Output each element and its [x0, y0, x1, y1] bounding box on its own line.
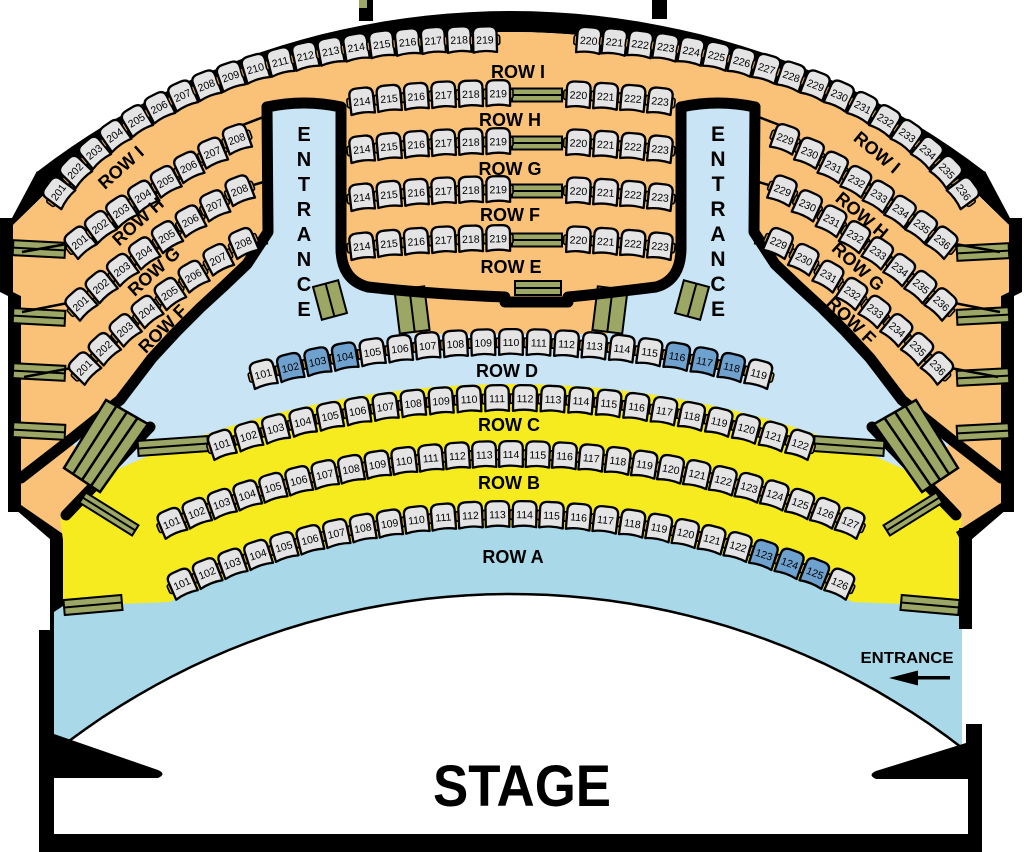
svg-text:ROW I: ROW I	[491, 62, 545, 82]
svg-text:ROW H: ROW H	[479, 110, 541, 130]
svg-text:C: C	[297, 274, 311, 296]
svg-text:N: N	[297, 149, 311, 171]
svg-text:222: 222	[631, 38, 650, 52]
svg-text:108: 108	[404, 397, 423, 411]
svg-text:N: N	[297, 249, 311, 271]
svg-text:ROW C: ROW C	[478, 415, 540, 435]
svg-text:113: 113	[585, 340, 603, 353]
svg-text:219: 219	[489, 88, 507, 100]
svg-text:220: 220	[569, 89, 587, 102]
svg-text:214: 214	[353, 143, 372, 157]
svg-text:222: 222	[624, 189, 643, 202]
svg-text:214: 214	[353, 95, 372, 109]
svg-text:115: 115	[529, 449, 546, 461]
svg-text:117: 117	[596, 514, 614, 528]
svg-text:221: 221	[597, 236, 615, 249]
svg-text:110: 110	[460, 394, 477, 407]
svg-text:215: 215	[380, 93, 399, 106]
svg-text:217: 217	[424, 35, 443, 48]
svg-text:221: 221	[597, 187, 615, 200]
svg-text:ROW A: ROW A	[482, 547, 543, 567]
svg-text:216: 216	[398, 36, 417, 50]
svg-text:216: 216	[407, 139, 425, 152]
svg-text:R: R	[297, 199, 312, 221]
svg-text:118: 118	[623, 517, 641, 531]
svg-text:111: 111	[489, 393, 505, 405]
svg-text:111: 111	[531, 337, 547, 349]
svg-text:T: T	[298, 174, 310, 196]
svg-text:ROW D: ROW D	[476, 361, 538, 381]
svg-text:N: N	[710, 148, 725, 171]
svg-text:T: T	[712, 173, 725, 196]
svg-text:119: 119	[635, 458, 654, 472]
svg-text:114: 114	[572, 395, 590, 408]
svg-text:220: 220	[569, 185, 587, 198]
svg-text:113: 113	[489, 509, 506, 521]
svg-text:ROW B: ROW B	[478, 473, 540, 493]
svg-text:116: 116	[627, 401, 645, 415]
svg-text:113: 113	[476, 449, 493, 462]
svg-text:110: 110	[395, 455, 413, 469]
svg-text:114: 114	[503, 449, 520, 461]
svg-text:220: 220	[569, 137, 587, 150]
svg-text:116: 116	[556, 450, 574, 463]
svg-text:223: 223	[651, 95, 670, 109]
svg-text:215: 215	[372, 38, 391, 52]
svg-text:113: 113	[544, 394, 561, 407]
svg-text:ROW E: ROW E	[481, 257, 542, 277]
svg-text:222: 222	[624, 238, 643, 251]
svg-text:106: 106	[391, 343, 410, 357]
svg-text:215: 215	[380, 238, 399, 251]
svg-text:110: 110	[503, 337, 520, 349]
svg-text:E: E	[711, 298, 725, 321]
svg-text:STAGE: STAGE	[433, 754, 611, 819]
svg-text:219: 219	[476, 34, 494, 46]
svg-text:116: 116	[570, 511, 588, 524]
svg-text:109: 109	[432, 395, 451, 408]
svg-text:112: 112	[517, 393, 534, 405]
svg-text:222: 222	[624, 141, 643, 154]
svg-text:ROW G: ROW G	[479, 159, 542, 179]
svg-text:217: 217	[435, 137, 453, 150]
svg-text:112: 112	[449, 450, 467, 463]
svg-text:218: 218	[462, 89, 480, 101]
svg-text:219: 219	[489, 136, 507, 148]
svg-text:115: 115	[600, 397, 618, 411]
svg-text:214: 214	[353, 191, 372, 205]
svg-text:A: A	[297, 224, 311, 246]
svg-text:110: 110	[408, 514, 426, 528]
svg-text:214: 214	[353, 240, 372, 254]
svg-text:218: 218	[450, 34, 468, 47]
svg-text:112: 112	[558, 338, 576, 351]
svg-text:223: 223	[651, 143, 670, 157]
svg-text:R: R	[710, 198, 725, 221]
svg-text:221: 221	[597, 139, 615, 152]
svg-text:109: 109	[474, 337, 492, 349]
svg-text:105: 105	[363, 346, 382, 360]
svg-text:A: A	[710, 223, 725, 246]
svg-text:115: 115	[640, 346, 658, 360]
svg-text:E: E	[297, 124, 310, 146]
svg-text:N: N	[710, 248, 725, 271]
svg-text:216: 216	[407, 187, 425, 200]
svg-text:222: 222	[624, 93, 643, 106]
svg-text:107: 107	[376, 401, 395, 415]
svg-text:ROW F: ROW F	[480, 205, 540, 225]
svg-text:114: 114	[516, 509, 533, 521]
svg-text:E: E	[297, 299, 310, 321]
svg-text:107: 107	[418, 340, 437, 353]
svg-text:215: 215	[380, 189, 399, 202]
svg-text:218: 218	[462, 137, 480, 149]
svg-text:112: 112	[462, 510, 479, 523]
svg-text:218: 218	[462, 234, 480, 246]
svg-text:E: E	[711, 123, 725, 146]
svg-text:115: 115	[543, 510, 560, 523]
svg-text:118: 118	[609, 455, 627, 469]
svg-text:216: 216	[407, 91, 425, 104]
svg-text:219: 219	[489, 184, 507, 196]
svg-text:223: 223	[651, 240, 670, 254]
svg-text:223: 223	[651, 191, 670, 205]
svg-text:220: 220	[580, 35, 599, 48]
svg-text:216: 216	[407, 236, 425, 249]
svg-text:221: 221	[605, 36, 624, 50]
svg-text:ENTRANCE: ENTRANCE	[861, 650, 954, 667]
svg-text:219: 219	[489, 233, 507, 245]
svg-text:117: 117	[582, 452, 600, 465]
svg-text:217: 217	[435, 234, 453, 247]
svg-text:C: C	[710, 273, 725, 296]
svg-text:114: 114	[613, 343, 631, 357]
svg-text:217: 217	[435, 185, 453, 198]
svg-text:108: 108	[446, 338, 464, 351]
svg-text:215: 215	[380, 141, 399, 154]
svg-text:111: 111	[435, 511, 452, 524]
svg-text:221: 221	[597, 91, 615, 104]
svg-text:217: 217	[435, 89, 453, 102]
svg-text:111: 111	[422, 452, 439, 465]
svg-text:218: 218	[462, 185, 480, 197]
svg-text:220: 220	[569, 234, 587, 247]
